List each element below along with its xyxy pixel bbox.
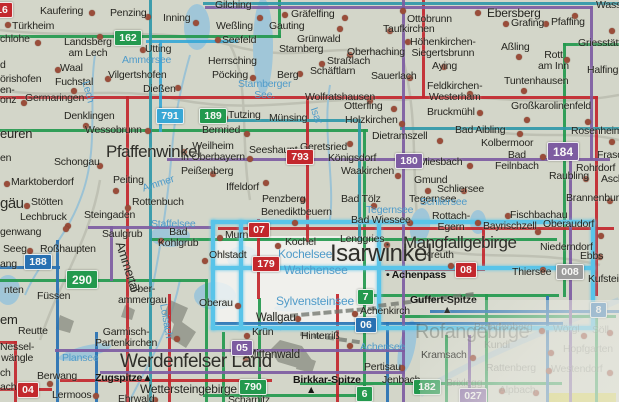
town-label: Pertisau: [364, 362, 401, 373]
town-dot: [247, 156, 253, 162]
town-label: Rohrdorf: [576, 163, 615, 174]
town-label: Garmisch- Partenkirchen: [95, 327, 157, 348]
town-label: en: [0, 153, 11, 164]
map-sheet-badge: 182: [413, 379, 441, 395]
town-label: Kolbermoor: [481, 138, 533, 149]
town-label: Scharnitz: [228, 395, 270, 402]
town-label: Frasdorf: [597, 150, 619, 161]
town-label: Westendorf: [551, 364, 603, 375]
town-dot: [244, 131, 250, 137]
town-label: ang: [0, 259, 17, 270]
town-dot: [437, 138, 443, 144]
town-label: Landsberg am Lech: [64, 37, 112, 58]
town-label: Tuntenhausen: [504, 76, 568, 87]
peak-label: Zugspitze▲: [95, 373, 152, 384]
peak-label: ▲: [306, 385, 316, 396]
town-dot: [581, 333, 587, 339]
water-label: Ammersee: [122, 55, 171, 66]
town-label: Gauting: [269, 21, 304, 32]
town-dot: [89, 10, 95, 16]
town-dot: [448, 263, 454, 269]
town-dot: [475, 10, 481, 16]
town-label: Starnberg: [279, 44, 323, 55]
town-dot: [235, 303, 241, 309]
town-label: Penzing: [110, 8, 147, 19]
town-label: Ohlstadt: [209, 250, 247, 261]
town-label: genwang: [0, 227, 41, 238]
town-label: Kramsach: [421, 350, 467, 361]
town-label: Oberaudorf: [543, 219, 594, 230]
map-sheet-badge: 08: [455, 262, 477, 278]
town-label: Holzkirchen: [345, 115, 398, 126]
town-label: Rottach- Egern: [432, 211, 470, 232]
sheet-boundary-line: [211, 220, 215, 330]
water-label: Achensee: [360, 342, 405, 353]
town-dot: [113, 188, 119, 194]
sheet-boundary-line: [203, 2, 619, 5]
town-dot: [607, 370, 613, 376]
town-label: Weßling: [216, 21, 253, 32]
town-label: Peißenberg: [181, 166, 233, 177]
town-label: Rottenbuch: [132, 197, 184, 208]
town-label: Vilgertshofen: [108, 70, 167, 81]
town-label: Alpbach: [499, 385, 536, 396]
town-label: Höhenkirchen- Siegertsbrunn: [410, 37, 476, 58]
town-label: Brannenburg: [566, 193, 619, 204]
town-label: Bad Aibling: [455, 125, 505, 136]
town-label: Kochel: [285, 237, 316, 248]
town-label: Ebbs: [580, 251, 603, 262]
town-label: Aßling: [501, 42, 530, 53]
town-label: Bad Kohlgrub: [158, 227, 198, 248]
town-dot: [609, 28, 615, 34]
map-sheet-badge: 008: [556, 264, 584, 280]
town-label: Großkarolinenfeld: [511, 101, 591, 112]
town-dot: [202, 258, 208, 264]
town-label: chlohe: [0, 34, 30, 45]
region-label: Pfaffenwinkel: [106, 143, 200, 160]
town-label: Lermoos: [52, 390, 91, 401]
town-label: Aschau: [601, 174, 619, 185]
map-sheet-badge: 189: [199, 108, 227, 124]
sheet-boundary-line: [400, 315, 616, 318]
town-label: Steingaden: [84, 210, 135, 221]
town-label: Otterfing: [344, 101, 382, 112]
town-dot: [4, 181, 10, 187]
town-label: örishofen: [0, 74, 41, 85]
water-label: Tegernsee: [366, 205, 413, 216]
peak-label: Birkkar-Spitze: [293, 375, 361, 386]
town-label: Bad Feilnbach: [495, 150, 539, 171]
town-label: Krün: [252, 327, 273, 338]
town-label: Stötten: [31, 197, 63, 208]
town-label: Utting: [145, 44, 171, 55]
town-label: Griesstätt: [578, 38, 619, 49]
town-label: euren: [0, 127, 32, 140]
town-dot: [521, 88, 527, 94]
town-label: Miesbach: [419, 157, 462, 168]
map-sheet-badge: 6: [356, 386, 373, 402]
map-sheet-badge: 184: [547, 142, 579, 161]
town-label: Füssen: [37, 291, 70, 302]
town-dot: [145, 128, 151, 134]
map-sheet-badge: 188: [24, 254, 52, 270]
town-label: Dietramszell: [372, 131, 427, 142]
map-sheet-badge: 162: [114, 30, 142, 46]
town-dot: [282, 12, 288, 18]
region-label: gäu: [0, 196, 24, 211]
town-label: Wettersteingebirge: [140, 383, 237, 395]
town-label: Seefeld: [222, 35, 256, 46]
town-label: Roßhaupten: [40, 244, 96, 255]
town-label: Denklingen: [64, 111, 115, 122]
town-label: Schongau: [54, 157, 100, 168]
town-dot: [215, 37, 221, 43]
town-label: Rott am Inn: [538, 50, 569, 71]
town-label: nten: [4, 285, 24, 296]
town-dot: [598, 233, 604, 239]
town-label: Peiting: [113, 175, 144, 186]
map-canvas: KauferingPenzingInningTürkheimchloheLand…: [0, 0, 619, 402]
town-label: Rosenheim: [571, 126, 619, 137]
map-sheet-badge: 790: [239, 379, 267, 395]
map-sheet-badge: 027: [459, 388, 487, 402]
town-dot: [539, 328, 545, 334]
town-label: Bad Wiessee: [351, 215, 411, 226]
town-label: Brixlegg: [446, 378, 482, 389]
town-label: Feldkirchen- Westerham: [427, 81, 482, 102]
town-dot: [342, 15, 348, 21]
water-label: Kochelsee: [278, 248, 332, 260]
town-dot: [292, 220, 298, 226]
town-dot: [217, 235, 223, 241]
town-label: ach: [0, 382, 16, 393]
peak-label: ▲: [442, 305, 452, 316]
town-label: onz: [0, 95, 16, 106]
town-dot: [35, 40, 41, 46]
map-sheet-badge: 793: [286, 149, 314, 165]
town-label: Herrsching: [208, 56, 257, 67]
town-label: Penzberg: [262, 194, 305, 205]
town-label: Ottobrunn: [407, 14, 452, 25]
map-sheet-badge: 05: [231, 340, 253, 356]
town-label: Rattenberg: [486, 363, 536, 374]
town-dot: [503, 21, 509, 27]
town-dot: [395, 173, 401, 179]
town-label: Hinterriß: [301, 331, 339, 342]
town-label: Wass: [596, 0, 619, 11]
map-sheet-badge: 16: [0, 2, 13, 18]
town-label: Germaringen: [25, 93, 84, 104]
map-sheet-badge: 04: [17, 382, 39, 398]
town-dot: [400, 8, 406, 14]
town-label: Türkheim: [12, 21, 54, 32]
town-label: Dießen: [143, 84, 176, 95]
town-label: Kufstein: [588, 274, 619, 285]
map-sheet-badge: 791: [156, 108, 184, 124]
town-label: Söll: [592, 325, 609, 336]
water-label: Schliersee: [420, 197, 467, 208]
region-label: Mangfallgebirge: [403, 234, 516, 251]
town-label: Waakirchen: [341, 166, 394, 177]
town-label: Waal: [60, 63, 83, 74]
town-label: ch: [0, 368, 11, 379]
map-sheet-badge: 8: [590, 302, 607, 318]
town-dot: [24, 203, 30, 209]
town-dot: [477, 110, 483, 116]
town-dot: [257, 15, 263, 21]
town-label: Wessobrunn: [85, 125, 142, 136]
town-label: Wallgau: [256, 313, 296, 325]
water-label: Sylvensteinsee: [276, 295, 354, 307]
town-label: Sauerlach: [371, 71, 416, 82]
sheet-boundary-line: [0, 279, 208, 282]
town-dot: [540, 154, 546, 160]
town-dot: [244, 333, 250, 339]
town-label: Thiersee: [512, 267, 551, 278]
town-label: Nessel- wängle: [0, 342, 34, 363]
town-label: Aying: [432, 61, 457, 72]
town-dot: [263, 180, 269, 186]
town-dot: [63, 226, 69, 232]
town-dot: [475, 220, 481, 226]
town-dot: [5, 22, 11, 28]
map-sheet-badge: 06: [355, 317, 377, 333]
sheet-boundary-line: [445, 335, 448, 402]
peak-label: • Achenpass: [386, 270, 446, 281]
town-label: Reutte: [18, 326, 48, 337]
region-label: Rofangebirge: [415, 322, 529, 342]
town-label: Hopfgarten: [563, 344, 613, 355]
town-label: Iffeldorf: [226, 182, 259, 193]
town-dot: [467, 163, 473, 169]
town-label: Saulgrub: [102, 229, 142, 240]
water-label: Plansee: [62, 353, 99, 364]
town-label: Grafing: [511, 18, 544, 29]
town-label: Seeg: [3, 244, 27, 255]
water-label: Starnberger See.: [238, 79, 291, 100]
map-sheet-badge: 290: [66, 270, 98, 289]
town-label: Gilching: [215, 0, 251, 11]
town-label: Pfaffing: [551, 17, 585, 28]
town-label: Taufkirchen: [383, 24, 435, 35]
town-label: em: [0, 313, 18, 326]
town-dot: [347, 141, 353, 147]
town-label: Achenkirch: [360, 306, 410, 317]
town-dot: [548, 350, 554, 356]
town-dot: [524, 117, 530, 123]
town-label: Münsing: [269, 113, 307, 124]
town-label: Königsdorf: [328, 153, 376, 164]
town-label: Kaufering: [40, 6, 83, 17]
town-dot: [193, 20, 199, 26]
town-dot: [470, 355, 476, 361]
town-label: Berwang: [37, 371, 77, 382]
town-label: Bayrischzell: [483, 221, 537, 232]
map-sheet-badge: 07: [248, 222, 270, 238]
town-label: Benediktbeuern: [261, 207, 332, 218]
town-label: Marktoberdorf: [11, 177, 74, 188]
water-label: Staffelsee: [151, 219, 196, 230]
map-sheet-badge: 7: [357, 289, 374, 305]
town-label: d: [0, 60, 6, 71]
town-dot: [516, 54, 522, 60]
town-label: Schäftlarn: [310, 66, 355, 77]
town-label: Bernried: [202, 125, 240, 136]
town-label: Halfing: [587, 65, 618, 76]
map-sheet-badge: 180: [395, 153, 423, 169]
town-dot: [391, 106, 397, 112]
town-dot: [93, 393, 99, 399]
town-dot: [609, 139, 615, 145]
town-label: Bruckmühl: [427, 107, 475, 118]
town-label: Tutzing: [228, 110, 261, 121]
town-dot: [347, 343, 353, 349]
town-label: Wörgl: [553, 324, 579, 335]
map-sheet-badge: 179: [252, 256, 280, 272]
town-label: Lechbruck: [20, 212, 67, 223]
town-label: Inning: [163, 13, 190, 24]
town-label: Bad Tölz: [341, 194, 381, 205]
town-label: Gräfelfing: [291, 9, 335, 20]
town-dot: [337, 26, 343, 32]
town-label: Oberau: [199, 298, 233, 309]
town-dot: [399, 121, 405, 127]
sheet-boundary-line: [0, 129, 368, 132]
